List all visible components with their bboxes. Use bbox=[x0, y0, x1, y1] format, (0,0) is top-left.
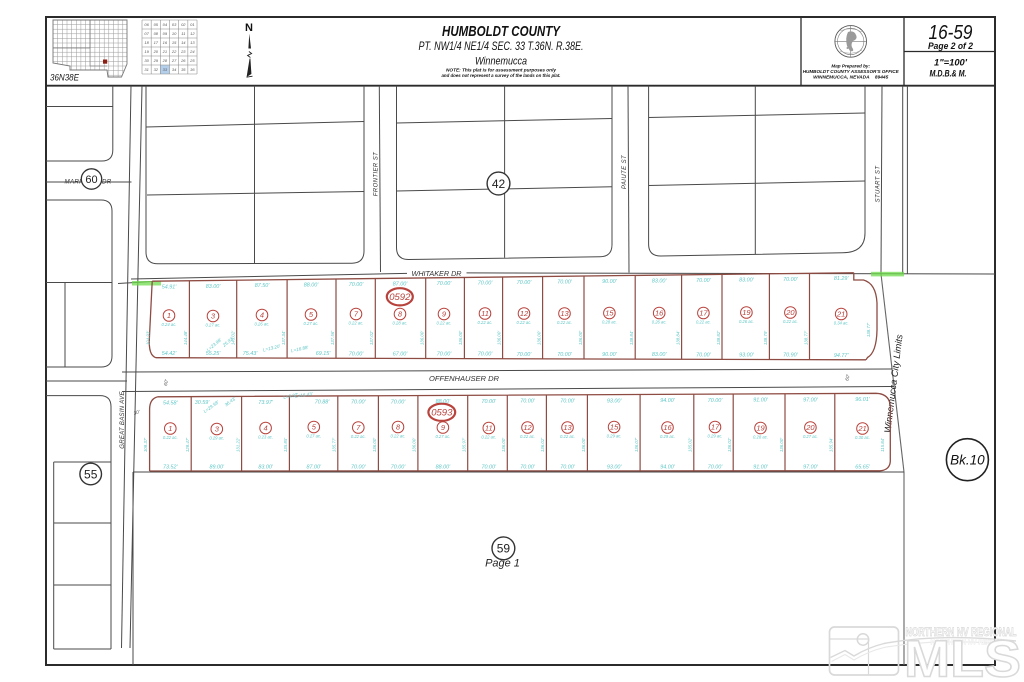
svg-text:OFFENHAUSER DR: OFFENHAUSER DR bbox=[429, 374, 499, 383]
svg-text:33: 33 bbox=[163, 67, 168, 72]
svg-text:15: 15 bbox=[172, 40, 177, 45]
svg-text:0.22 ac.: 0.22 ac. bbox=[163, 435, 178, 440]
svg-text:135.77': 135.77' bbox=[332, 438, 337, 452]
svg-text:135.02': 135.02' bbox=[688, 438, 693, 452]
svg-text:0.22 ac.: 0.22 ac. bbox=[557, 320, 572, 325]
svg-text:25: 25 bbox=[189, 58, 195, 63]
svg-text:29: 29 bbox=[153, 58, 159, 63]
svg-text:0.24 ac.: 0.24 ac. bbox=[162, 322, 177, 327]
svg-text:22: 22 bbox=[171, 49, 177, 54]
svg-text:136.00': 136.00' bbox=[578, 331, 583, 345]
svg-text:136.00': 136.00' bbox=[581, 438, 586, 452]
svg-text:1: 1 bbox=[168, 424, 172, 433]
svg-text:93.00': 93.00' bbox=[739, 353, 754, 359]
svg-text:70.00': 70.00' bbox=[783, 277, 798, 283]
svg-text:91.00': 91.00' bbox=[753, 465, 768, 471]
svg-text:70.88': 70.88' bbox=[315, 400, 330, 406]
svg-text:NOTE: This plat is for assessm: NOTE: This plat is for assessment purpos… bbox=[446, 68, 556, 73]
svg-text:0.30 ac.: 0.30 ac. bbox=[855, 435, 870, 440]
svg-text:HUMBOLDT COUNTY: HUMBOLDT COUNTY bbox=[442, 24, 561, 40]
svg-text:0.22 ac.: 0.22 ac. bbox=[783, 319, 798, 324]
svg-text:70.00': 70.00' bbox=[349, 282, 364, 288]
svg-text:67.00': 67.00' bbox=[393, 352, 408, 358]
svg-text:31: 31 bbox=[144, 67, 148, 72]
svg-text:0.29 ac.: 0.29 ac. bbox=[708, 434, 723, 439]
svg-text:70.00': 70.00' bbox=[708, 398, 723, 404]
svg-text:70.00': 70.00' bbox=[560, 399, 575, 405]
svg-text:136.00': 136.00' bbox=[536, 331, 541, 345]
svg-text:81.29': 81.29' bbox=[834, 276, 849, 282]
svg-text:0.22 ac.: 0.22 ac. bbox=[696, 320, 711, 325]
svg-text:07: 07 bbox=[144, 31, 149, 36]
svg-text:70.00': 70.00' bbox=[478, 352, 493, 358]
svg-text:70.00': 70.00' bbox=[437, 281, 452, 287]
svg-text:70.00': 70.00' bbox=[349, 351, 364, 357]
svg-text:17: 17 bbox=[699, 309, 708, 318]
svg-text:0.28 ac.: 0.28 ac. bbox=[753, 435, 768, 440]
svg-text:0.22 ac.: 0.22 ac. bbox=[351, 434, 366, 439]
svg-text:91.00': 91.00' bbox=[753, 398, 768, 404]
svg-text:136.07': 136.07' bbox=[634, 438, 639, 452]
svg-text:137.02': 137.02' bbox=[369, 331, 374, 345]
svg-text:54.58': 54.58' bbox=[163, 400, 178, 406]
svg-text:0.26 ac.: 0.26 ac. bbox=[739, 319, 754, 324]
svg-text:15: 15 bbox=[605, 309, 614, 318]
svg-text:0.28 ac.: 0.28 ac. bbox=[602, 320, 617, 325]
svg-text:14: 14 bbox=[181, 40, 186, 45]
svg-text:138.77': 138.77' bbox=[803, 331, 808, 345]
svg-text:0592: 0592 bbox=[389, 292, 411, 303]
svg-text:75.43': 75.43' bbox=[243, 351, 258, 357]
svg-text:11: 11 bbox=[481, 309, 489, 318]
svg-text:131.22': 131.22' bbox=[235, 438, 240, 452]
svg-text:21: 21 bbox=[162, 49, 167, 54]
svg-text:135.85': 135.85' bbox=[283, 438, 288, 452]
svg-text:19: 19 bbox=[742, 308, 751, 317]
svg-text:0.22 ac.: 0.22 ac. bbox=[478, 320, 493, 325]
svg-text:0.22 ac.: 0.22 ac. bbox=[481, 435, 496, 440]
svg-text:83.00': 83.00' bbox=[652, 352, 667, 358]
svg-text:96.01': 96.01' bbox=[855, 397, 870, 403]
svg-text:0.27 ac.: 0.27 ac. bbox=[803, 434, 818, 439]
svg-text:70.00': 70.00' bbox=[351, 465, 366, 471]
svg-text:138.82': 138.82' bbox=[716, 331, 721, 345]
svg-text:20: 20 bbox=[785, 308, 795, 317]
svg-text:70.00': 70.00' bbox=[391, 399, 406, 405]
svg-text:35: 35 bbox=[181, 67, 186, 72]
svg-text:70.00': 70.00' bbox=[520, 465, 535, 471]
svg-text:0.29 ac.: 0.29 ac. bbox=[660, 434, 675, 439]
svg-text:83.00': 83.00' bbox=[258, 465, 273, 471]
svg-text:138.84': 138.84' bbox=[675, 331, 680, 345]
svg-text:M.D.B.& M.: M.D.B.& M. bbox=[930, 68, 967, 78]
svg-text:13: 13 bbox=[190, 40, 195, 45]
svg-text:73.52': 73.52' bbox=[163, 465, 178, 471]
svg-text:97.00': 97.00' bbox=[803, 465, 818, 471]
svg-text:87.00': 87.00' bbox=[307, 465, 322, 471]
svg-text:STUART ST: STUART ST bbox=[876, 165, 882, 203]
svg-text:93.00': 93.00' bbox=[607, 398, 622, 404]
svg-text:36: 36 bbox=[190, 67, 195, 72]
svg-text:08: 08 bbox=[154, 31, 159, 36]
svg-text:83.00': 83.00' bbox=[206, 284, 221, 290]
svg-text:70.00': 70.00' bbox=[708, 465, 723, 471]
svg-text:54.42': 54.42' bbox=[162, 351, 177, 357]
svg-text:70.00': 70.00' bbox=[557, 280, 572, 286]
svg-text:70.00': 70.00' bbox=[478, 281, 493, 287]
svg-text:70.00': 70.00' bbox=[517, 280, 532, 286]
svg-text:26: 26 bbox=[180, 58, 186, 63]
svg-text:HUMBOLDT COUNTY ASSESSOR'S OFF: HUMBOLDT COUNTY ASSESSOR'S OFFICE bbox=[803, 69, 900, 75]
svg-text:70.00': 70.00' bbox=[696, 352, 711, 358]
svg-text:136.00': 136.00' bbox=[420, 331, 425, 345]
svg-text:70.00': 70.00' bbox=[482, 399, 497, 405]
svg-text:18: 18 bbox=[144, 40, 149, 45]
svg-text:1: 1 bbox=[167, 311, 171, 320]
svg-text:135.97': 135.97' bbox=[462, 438, 467, 452]
svg-text:0.22 ac.: 0.22 ac. bbox=[520, 434, 535, 439]
svg-text:03: 03 bbox=[172, 22, 177, 27]
svg-text:138.84': 138.84' bbox=[629, 331, 634, 345]
svg-text:135.94': 135.94' bbox=[829, 438, 834, 452]
svg-text:0593: 0593 bbox=[431, 407, 453, 418]
svg-text:60: 60 bbox=[85, 174, 97, 186]
svg-text:70.90': 70.90' bbox=[783, 353, 798, 359]
svg-text:94.77': 94.77' bbox=[834, 353, 849, 359]
svg-text:0.26 ac.: 0.26 ac. bbox=[652, 320, 667, 325]
svg-text:94.00': 94.00' bbox=[660, 398, 675, 404]
svg-text:Map Prepared by:: Map Prepared by: bbox=[831, 64, 870, 69]
svg-text:21: 21 bbox=[836, 310, 845, 319]
svg-text:90.00': 90.00' bbox=[602, 352, 617, 358]
svg-text:136.00': 136.00' bbox=[372, 438, 377, 452]
svg-text:138.77': 138.77' bbox=[866, 323, 871, 337]
svg-text:16: 16 bbox=[163, 40, 168, 45]
svg-text:21: 21 bbox=[857, 424, 866, 433]
svg-text:136.00': 136.00' bbox=[496, 331, 501, 345]
svg-text:13: 13 bbox=[563, 423, 572, 432]
svg-text:54.91': 54.91' bbox=[162, 284, 177, 290]
svg-text:17: 17 bbox=[154, 40, 159, 45]
svg-text:70.00': 70.00' bbox=[517, 352, 532, 358]
svg-text:94.00': 94.00' bbox=[660, 465, 675, 471]
svg-text:and does not represent a surve: and does not represent a survey of the l… bbox=[442, 73, 561, 78]
svg-text:73.97': 73.97' bbox=[258, 400, 273, 406]
svg-text:10: 10 bbox=[172, 31, 177, 36]
svg-text:15: 15 bbox=[610, 423, 619, 432]
svg-text:0.29 ac.: 0.29 ac. bbox=[209, 436, 224, 441]
svg-text:04: 04 bbox=[163, 22, 168, 27]
svg-text:136.00': 136.00' bbox=[458, 331, 463, 345]
svg-text:108.37': 108.37' bbox=[143, 438, 148, 452]
svg-text:0.22 ac.: 0.22 ac. bbox=[391, 434, 406, 439]
svg-text:87.50': 87.50' bbox=[255, 283, 270, 289]
svg-text:MLS: MLS bbox=[904, 631, 1021, 682]
svg-text:16: 16 bbox=[655, 309, 664, 318]
svg-text:144.48': 144.48' bbox=[183, 331, 188, 345]
svg-text:136.00': 136.00' bbox=[412, 438, 417, 452]
svg-text:4: 4 bbox=[260, 311, 264, 320]
svg-text:0.23 ac.: 0.23 ac. bbox=[258, 435, 273, 440]
svg-text:115.84': 115.84' bbox=[880, 438, 885, 452]
svg-text:70.00': 70.00' bbox=[391, 465, 406, 471]
svg-text:27: 27 bbox=[171, 58, 177, 63]
svg-text:06: 06 bbox=[144, 22, 149, 27]
svg-text:70.00': 70.00' bbox=[482, 465, 497, 471]
svg-text:19: 19 bbox=[144, 49, 149, 54]
svg-text:83.00': 83.00' bbox=[652, 278, 667, 284]
svg-text:4: 4 bbox=[264, 424, 268, 433]
svg-text:WHITAKER DR: WHITAKER DR bbox=[412, 269, 462, 278]
svg-text:09: 09 bbox=[163, 31, 168, 36]
svg-text:0.27 ac.: 0.27 ac. bbox=[306, 434, 321, 439]
svg-text:0.27 ac.: 0.27 ac. bbox=[304, 321, 319, 326]
svg-text:136.02': 136.02' bbox=[727, 438, 732, 452]
svg-text:32: 32 bbox=[154, 67, 159, 72]
svg-text:0.27 ac.: 0.27 ac. bbox=[206, 323, 221, 328]
svg-text:70.00': 70.00' bbox=[560, 465, 575, 471]
svg-text:02: 02 bbox=[181, 22, 186, 27]
svg-text:136.00': 136.00' bbox=[501, 438, 506, 452]
svg-text:19: 19 bbox=[756, 424, 765, 433]
svg-text:GREAT BASIN AVE: GREAT BASIN AVE bbox=[120, 391, 126, 449]
svg-text:70.00': 70.00' bbox=[437, 352, 452, 358]
svg-text:65.65': 65.65' bbox=[855, 465, 870, 471]
svg-text:89.00': 89.00' bbox=[210, 465, 225, 471]
svg-text:0.27 ac.: 0.27 ac. bbox=[435, 434, 450, 439]
svg-text:28: 28 bbox=[162, 58, 168, 63]
svg-text:Page 2 of 2: Page 2 of 2 bbox=[928, 41, 973, 51]
svg-text:20: 20 bbox=[153, 49, 159, 54]
svg-text:05: 05 bbox=[154, 22, 159, 27]
svg-text:23: 23 bbox=[180, 49, 186, 54]
svg-text:24: 24 bbox=[189, 49, 195, 54]
svg-text:FRONTIER ST: FRONTIER ST bbox=[374, 151, 380, 196]
svg-text:WINNEMUCCA, NEVADA 89445: WINNEMUCCA, NEVADA 89445 bbox=[813, 75, 888, 81]
svg-text:16: 16 bbox=[663, 423, 672, 432]
svg-text:PAIUTE ST: PAIUTE ST bbox=[622, 154, 628, 189]
svg-text:97.00': 97.00' bbox=[803, 397, 818, 403]
svg-text:34: 34 bbox=[172, 67, 177, 72]
svg-text:55: 55 bbox=[84, 467, 98, 481]
svg-text:138.79': 138.79' bbox=[763, 331, 768, 345]
svg-text:137.56': 137.56' bbox=[330, 331, 335, 345]
svg-text:0.29 ac.: 0.29 ac. bbox=[607, 434, 622, 439]
svg-text:70.00': 70.00' bbox=[351, 400, 366, 406]
svg-text:0.34 ac.: 0.34 ac. bbox=[834, 321, 849, 326]
svg-text:17: 17 bbox=[711, 423, 720, 432]
svg-text:90.00': 90.00' bbox=[602, 279, 617, 285]
svg-text:137.34': 137.34' bbox=[281, 331, 286, 345]
svg-text:88.00': 88.00' bbox=[436, 465, 451, 471]
svg-text:88.00': 88.00' bbox=[304, 283, 319, 289]
svg-text:Winnemucca: Winnemucca bbox=[475, 56, 527, 68]
svg-text:11: 11 bbox=[181, 31, 185, 36]
svg-text:0.26 ac.: 0.26 ac. bbox=[255, 322, 270, 327]
svg-text:Page 1: Page 1 bbox=[485, 558, 520, 570]
svg-text:Bk.10: Bk.10 bbox=[950, 452, 985, 467]
svg-text:70.00': 70.00' bbox=[557, 352, 572, 358]
svg-text:PT. NW1/4 NE1/4 SEC. 33 T.36N.: PT. NW1/4 NE1/4 SEC. 33 T.36N. R.38E. bbox=[419, 41, 584, 53]
svg-text:20: 20 bbox=[805, 423, 815, 432]
svg-text:104.93': 104.93' bbox=[145, 331, 150, 345]
svg-text:88.00': 88.00' bbox=[436, 399, 451, 405]
svg-text:13: 13 bbox=[560, 309, 569, 318]
svg-text:69.15': 69.15' bbox=[316, 351, 331, 357]
svg-text:93.00': 93.00' bbox=[607, 465, 622, 471]
svg-text:11: 11 bbox=[485, 424, 493, 433]
svg-text:1"=100': 1"=100' bbox=[934, 57, 968, 67]
svg-text:83.00': 83.00' bbox=[739, 277, 754, 283]
svg-text:N: N bbox=[245, 22, 253, 34]
svg-text:0.22 ac.: 0.22 ac. bbox=[437, 321, 452, 326]
svg-text:30: 30 bbox=[144, 58, 149, 63]
svg-text:12: 12 bbox=[190, 31, 195, 36]
svg-text:12: 12 bbox=[523, 423, 532, 432]
svg-text:0.22 ac.: 0.22 ac. bbox=[560, 434, 575, 439]
svg-text:01: 01 bbox=[190, 22, 194, 27]
svg-text:87.00': 87.00' bbox=[393, 282, 408, 288]
svg-text:0.22 ac.: 0.22 ac. bbox=[517, 320, 532, 325]
svg-text:12: 12 bbox=[520, 309, 529, 318]
svg-text:136.02': 136.02' bbox=[540, 438, 545, 452]
svg-text:70.00': 70.00' bbox=[520, 399, 535, 405]
svg-text:136.00': 136.00' bbox=[779, 438, 784, 452]
svg-text:42: 42 bbox=[492, 177, 506, 191]
svg-text:70.00': 70.00' bbox=[696, 278, 711, 284]
svg-text:0.22 ac.: 0.22 ac. bbox=[349, 321, 364, 326]
svg-text:36N38E: 36N38E bbox=[50, 73, 80, 83]
svg-text:0.28 ac.: 0.28 ac. bbox=[393, 321, 408, 326]
svg-text:128.47': 128.47' bbox=[185, 438, 190, 452]
svg-text:59: 59 bbox=[497, 542, 511, 556]
